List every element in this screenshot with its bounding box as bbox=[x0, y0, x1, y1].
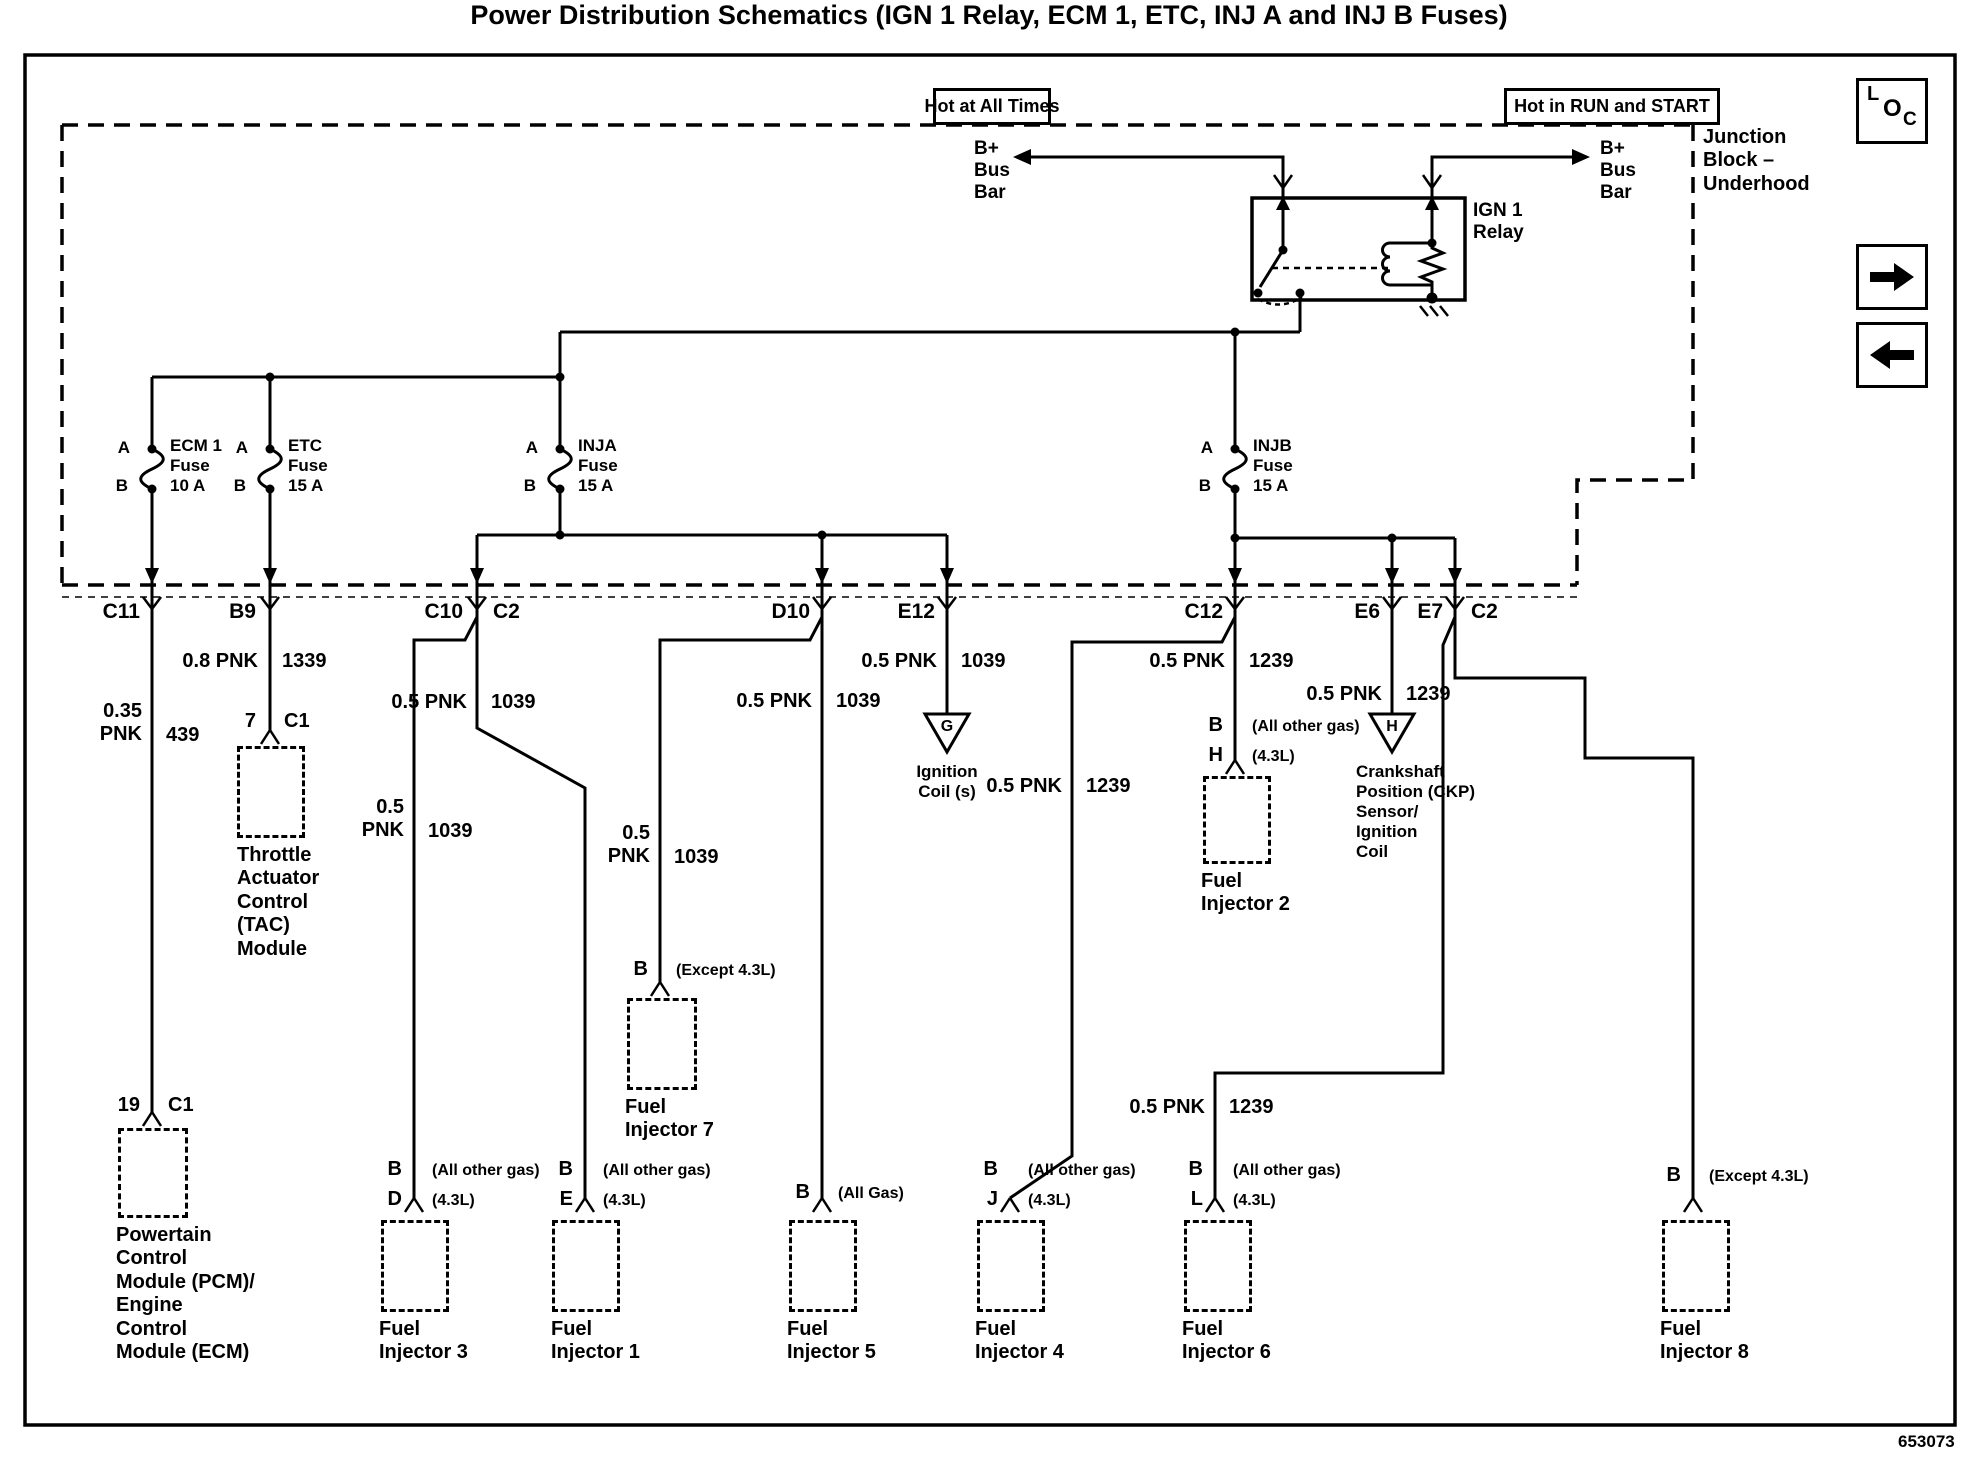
pcm-label: Powertain Control Module (PCM)/ Engine C… bbox=[116, 1224, 255, 1364]
banner-hot-in-run-start: Hot in RUN and START bbox=[1504, 88, 1720, 125]
wire-fi4-circuit: 1239 bbox=[1086, 775, 1131, 798]
fi7-label: Fuel Injector 7 bbox=[625, 1096, 714, 1143]
wire-fi7-gauge: 0.5 PNK bbox=[580, 822, 650, 869]
pcm-box bbox=[118, 1128, 188, 1218]
wire-fi3-circuit: 1039 bbox=[428, 820, 473, 843]
fi6-pin-b: B bbox=[1163, 1158, 1203, 1181]
ign-coil-triangle-letter: G bbox=[935, 718, 959, 737]
fi8-label: Fuel Injector 8 bbox=[1660, 1318, 1749, 1365]
connector-e6: E6 bbox=[1324, 600, 1380, 625]
ign1-relay-label: IGN 1 Relay bbox=[1473, 200, 1524, 244]
fi2-qual-2: (4.3L) bbox=[1252, 748, 1295, 767]
fi1-pin-b: B bbox=[533, 1158, 573, 1181]
loc-button[interactable]: L O C bbox=[1856, 78, 1928, 144]
fi4-pin-j: J bbox=[958, 1188, 998, 1211]
fi7-box bbox=[627, 998, 697, 1090]
fi4-pin-b: B bbox=[958, 1158, 998, 1181]
wire-c12-gauge: 0.5 PNK bbox=[1105, 650, 1225, 673]
bus-bar-left-label: B+ Bus Bar bbox=[974, 138, 1010, 205]
fi5-pin-b: B bbox=[770, 1181, 810, 1204]
fi6-box bbox=[1184, 1220, 1252, 1312]
prev-page-button[interactable] bbox=[1856, 322, 1928, 388]
wire-d10-circuit: 1039 bbox=[836, 690, 881, 713]
fi2-pin-b: B bbox=[1183, 714, 1223, 737]
connector-e12: E12 bbox=[861, 600, 935, 625]
border-arrows bbox=[145, 568, 1462, 584]
fi2-pin-h: H bbox=[1183, 744, 1223, 767]
tac-pin-connector: C1 bbox=[284, 710, 310, 733]
next-page-button[interactable] bbox=[1856, 244, 1928, 310]
wire-b9-gauge: 0.8 PNK bbox=[148, 650, 258, 673]
tac-module-label: Throttle Actuator Control (TAC) Module bbox=[237, 844, 319, 961]
wire-c11-gauge: 0.35 PNK bbox=[62, 700, 142, 747]
inja-fuse-pin-b: B bbox=[496, 476, 536, 496]
wire-c12-circuit: 1239 bbox=[1249, 650, 1294, 673]
bplus-right-arrow bbox=[1572, 149, 1590, 165]
wire-fi3-gauge: 0.5 PNK bbox=[334, 796, 404, 843]
fi1-pin-e: E bbox=[533, 1188, 573, 1211]
loc-letter-l: L bbox=[1867, 83, 1879, 106]
connector-e7-c2: C2 bbox=[1471, 600, 1498, 625]
connector-c11: C11 bbox=[73, 600, 140, 625]
wire-e6-gauge: 0.5 PNK bbox=[1262, 683, 1382, 706]
fi3-pin-d: D bbox=[362, 1188, 402, 1211]
banner-hot-at-all-times: Hot at All Times bbox=[933, 88, 1051, 125]
fi4-qual-1: (All other gas) bbox=[1028, 1162, 1136, 1181]
fi4-label: Fuel Injector 4 bbox=[975, 1318, 1064, 1365]
fi3-qual-1: (All other gas) bbox=[432, 1162, 540, 1181]
pcm-pin-connector: C1 bbox=[168, 1094, 194, 1117]
doc-number: 653073 bbox=[1898, 1432, 1955, 1452]
ckp-label: Crankshaft Position (CKP) Sensor/ Igniti… bbox=[1356, 762, 1475, 861]
fi1-qual-1: (All other gas) bbox=[603, 1162, 711, 1181]
relay-switch-blade bbox=[1260, 250, 1283, 287]
fi1-label: Fuel Injector 1 bbox=[551, 1318, 640, 1365]
ecm1-fuse-pin-b: B bbox=[88, 476, 128, 496]
wire-c2-circuit: 1039 bbox=[491, 691, 536, 714]
fi6-pin-l: L bbox=[1163, 1188, 1203, 1211]
fi3-pin-b: B bbox=[362, 1158, 402, 1181]
wire-fi6-gauge: 0.5 PNK bbox=[1085, 1096, 1205, 1119]
ign-coil-label: Ignition Coil (s) bbox=[887, 762, 1007, 802]
fi2-label: Fuel Injector 2 bbox=[1201, 870, 1290, 917]
wire-c11-circuit: 439 bbox=[166, 724, 199, 747]
wire-e12-circuit: 1039 bbox=[961, 650, 1006, 673]
connector-c12: C12 bbox=[1149, 600, 1223, 625]
fi1-qual-2: (4.3L) bbox=[603, 1192, 646, 1211]
fi6-qual-1: (All other gas) bbox=[1233, 1162, 1341, 1181]
etc-fuse-label: ETC Fuse 15 A bbox=[288, 436, 328, 496]
fi8-qual: (Except 4.3L) bbox=[1709, 1168, 1809, 1187]
loc-letter-o: O bbox=[1883, 95, 1902, 123]
connector-b9: B9 bbox=[188, 600, 256, 625]
connector-d10: D10 bbox=[738, 600, 810, 625]
arrow-left-icon bbox=[1870, 341, 1914, 369]
tac-module-box bbox=[237, 746, 305, 838]
bplus-left-arrow bbox=[1013, 149, 1031, 165]
bplus-feed-lines bbox=[1031, 157, 1572, 198]
fi4-qual-2: (4.3L) bbox=[1028, 1192, 1071, 1211]
ecm1-fuse-pin-a: A bbox=[90, 438, 130, 458]
arrow-right-icon bbox=[1870, 263, 1914, 291]
relay-resistor bbox=[1421, 243, 1443, 298]
fi3-qual-2: (4.3L) bbox=[432, 1192, 475, 1211]
ckp-triangle-letter: H bbox=[1380, 718, 1404, 737]
wire-c2-gauge: 0.5 PNK bbox=[347, 691, 467, 714]
fi2-qual-1: (All other gas) bbox=[1252, 718, 1360, 737]
etc-fuse-pin-a: A bbox=[208, 438, 248, 458]
bus-bar-right-label: B+ Bus Bar bbox=[1600, 138, 1636, 205]
wire-fi6-circuit: 1239 bbox=[1229, 1096, 1274, 1119]
junction-dots bbox=[148, 239, 1438, 543]
schematic-page: Power Distribution Schematics (IGN 1 Rel… bbox=[0, 0, 1978, 1472]
injb-fuse-label: INJB Fuse 15 A bbox=[1253, 436, 1293, 496]
inja-fuse-pin-a: A bbox=[498, 438, 538, 458]
etc-fuse-pin-b: B bbox=[206, 476, 246, 496]
fi3-box bbox=[381, 1220, 449, 1312]
fi5-qual: (All Gas) bbox=[838, 1185, 904, 1204]
wire-e6-circuit: 1239 bbox=[1406, 683, 1451, 706]
junction-block-outline bbox=[62, 125, 1693, 585]
fi7-qual: (Except 4.3L) bbox=[676, 962, 776, 981]
injb-fuse-pin-a: A bbox=[1173, 438, 1213, 458]
pcm-pin-number: 19 bbox=[104, 1094, 140, 1117]
wire-e12-gauge: 0.5 PNK bbox=[817, 650, 937, 673]
fi1-box bbox=[552, 1220, 620, 1312]
wire-b9-circuit: 1339 bbox=[282, 650, 327, 673]
relay-pin-chevrons bbox=[1274, 175, 1441, 188]
fi2-box bbox=[1203, 776, 1271, 864]
wire-d10-gauge: 0.5 PNK bbox=[692, 690, 812, 713]
fi8-pin-b: B bbox=[1641, 1164, 1681, 1187]
wire-fi7-circuit: 1039 bbox=[674, 846, 719, 869]
fi5-box bbox=[789, 1220, 857, 1312]
inja-fuse-label: INJA Fuse 15 A bbox=[578, 436, 618, 496]
ground-hatch-icon bbox=[1420, 306, 1448, 316]
fi7-pin-b: B bbox=[608, 958, 648, 981]
loc-letter-c: C bbox=[1903, 109, 1917, 131]
fi6-label: Fuel Injector 6 bbox=[1182, 1318, 1271, 1365]
tac-pin-number: 7 bbox=[226, 710, 256, 733]
ign1-relay-internals bbox=[1258, 198, 1448, 332]
connector-c10-c2: C2 bbox=[493, 600, 520, 625]
connector-c10: C10 bbox=[393, 600, 463, 625]
fi3-label: Fuel Injector 3 bbox=[379, 1318, 468, 1365]
fi5-label: Fuel Injector 5 bbox=[787, 1318, 876, 1365]
connector-e7: E7 bbox=[1387, 600, 1443, 625]
fi4-box bbox=[977, 1220, 1045, 1312]
injb-fuse-pin-b: B bbox=[1171, 476, 1211, 496]
fi8-box bbox=[1662, 1220, 1730, 1312]
junction-block-label: Junction Block – Underhood bbox=[1703, 126, 1810, 196]
fi6-qual-2: (4.3L) bbox=[1233, 1192, 1276, 1211]
